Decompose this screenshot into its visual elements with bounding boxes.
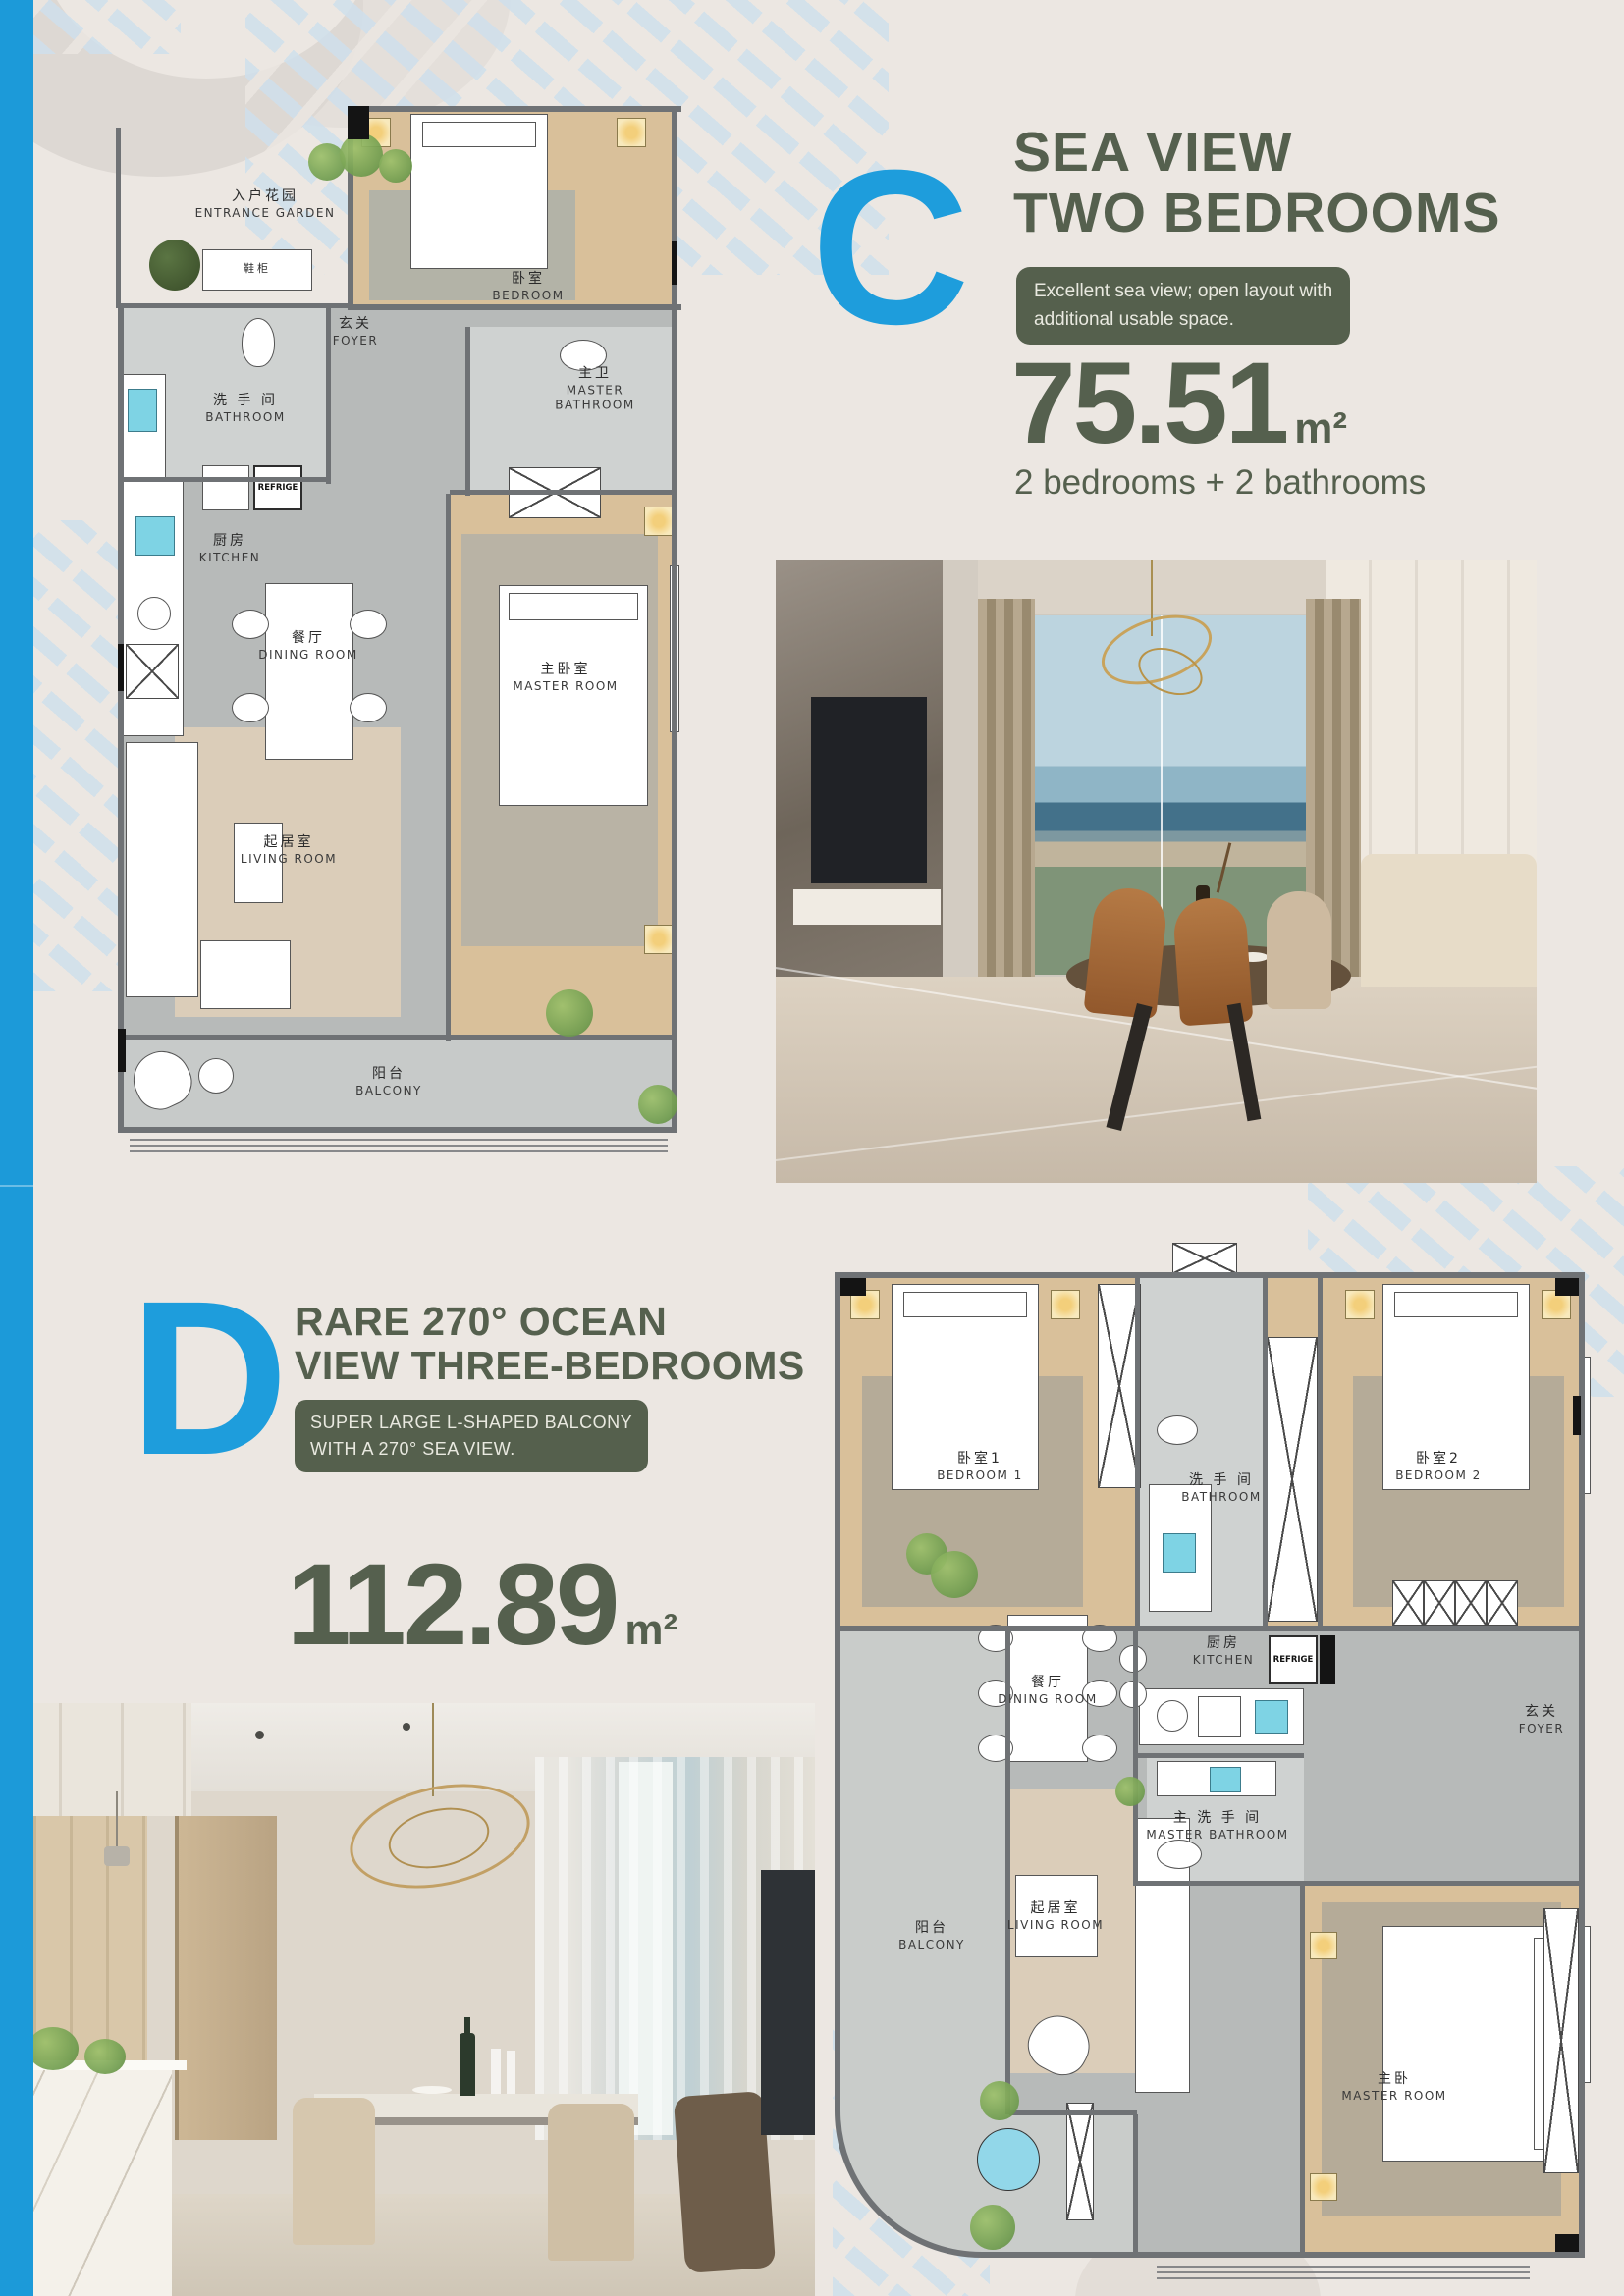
brochure-page: C SEA VIEW TWO BEDROOMS Excellent sea vi…: [0, 0, 1624, 2296]
unit-d-badge: SUPER LARGE L-SHAPED BALCONY WITH A 270°…: [295, 1400, 648, 1472]
plan-d-label-living-en: LIVING ROOM: [1007, 1917, 1104, 1932]
plan-d-label-bedroom2: 卧室2 BEDROOM 2: [1395, 1451, 1482, 1483]
plan-d-label-master-room-en: MASTER ROOM: [1341, 2088, 1446, 2103]
plan-c-label-entrance-garden-cn: 入户花园: [195, 188, 336, 206]
plan-c-blackwall-4: [118, 1029, 126, 1072]
plan-c-blackwall-3: [118, 644, 124, 691]
plan-c-sofa: [126, 742, 198, 997]
plan-d-label-master-bathroom-cn: 主 洗 手 间: [1146, 1810, 1288, 1828]
plan-c-garden-bush: [149, 240, 200, 291]
plan-d-w all-master-left: [1300, 1881, 1305, 2252]
plan-d-black-fridge: [1320, 1635, 1335, 1684]
plan-c-label-foyer-en: FOYER: [333, 333, 378, 347]
plan-d-wall-bedrooms-bottom: [840, 1626, 1579, 1631]
plan-d-label-dining-en: DINING ROOM: [998, 1691, 1097, 1706]
unit-d-area-unit: m²: [624, 1606, 677, 1654]
floorplan-unit-c: REFRIGE: [116, 94, 683, 1156]
plan-d-label-kitchen: 厨房 KITCHEN: [1193, 1635, 1255, 1668]
plan-c-label-foyer-cn: 玄关: [333, 316, 378, 334]
plan-d-label-balcony-cn: 阳台: [898, 1920, 965, 1938]
plan-d-wall-mbath-top: [1133, 1753, 1304, 1758]
plan-d-label-bathroom-en: BATHROOM: [1181, 1489, 1261, 1504]
plan-c-ottoman: [200, 940, 291, 1009]
plan-d-label-bedroom2-en: BEDROOM 2: [1395, 1468, 1482, 1482]
plan-c-label-master-bathroom: 主卫 MASTER BATHROOM: [552, 365, 638, 412]
plan-d-blackwall-3: [1573, 1396, 1581, 1435]
plan-c-label-dining: 餐厅 DINING ROOM: [258, 630, 357, 663]
plan-c-wall-bottom: [118, 1127, 677, 1133]
plan-d-label-balcony-en: BALCONY: [898, 1937, 965, 1951]
unit-c-config: 2 bedrooms + 2 bathrooms: [1014, 463, 1426, 503]
plan-d-label-foyer-cn: 玄关: [1519, 1704, 1564, 1722]
plan-c-label-balcony: 阳台 BALCONY: [355, 1066, 422, 1098]
floorplan-unit-d: REFRIGE: [833, 1239, 1597, 2296]
plan-d-label-living: 起居室 LIVING ROOM: [1007, 1900, 1104, 1933]
plan-c-wall-top: [348, 106, 681, 112]
unit-d-badge-line2: WITH A 270° SEA VIEW.: [310, 1436, 632, 1463]
plan-c-wall-garden-left: [116, 128, 121, 306]
plan-d-wall-master-top: [1300, 1881, 1583, 1886]
photo-unit-d-living-dining: [0, 1703, 815, 2296]
plan-d-tree-3: [1115, 1777, 1145, 1806]
plan-d-wall-balcony-right2: [1133, 2114, 1138, 2252]
plan-d-label-master-bathroom: 主 洗 手 间 MASTER BATHROOM: [1146, 1810, 1288, 1842]
left-accent-bar-seam: [0, 1185, 33, 1187]
plan-c-light-3: [644, 507, 674, 536]
unit-d-title: RARE 270° OCEAN VIEW THREE-BEDROOMS: [295, 1300, 805, 1388]
photo-d-pendant-cable: [116, 1791, 118, 1848]
plan-c-oven: [202, 465, 249, 510]
unit-c-area-value: 75.51: [1011, 339, 1286, 468]
photo-unit-c-dining-sea-view: [776, 560, 1537, 1183]
plan-c-label-master-bathroom-cn: 主卫: [552, 365, 638, 383]
plan-d-outer-wall: [835, 1272, 1585, 2258]
unit-c-area: 75.51m²: [1011, 346, 1347, 461]
photo-d-plant-2: [84, 2039, 126, 2074]
plan-c-balcony-line-3: [130, 1150, 668, 1152]
plan-c-label-kitchen-en: KITCHEN: [199, 550, 261, 564]
unit-c-area-unit: m²: [1294, 404, 1347, 453]
plan-d-label-bathroom: 洗 手 间 BATHROOM: [1181, 1472, 1261, 1505]
photo-c-sofa: [1361, 854, 1537, 987]
plan-c-balcony-line-2: [130, 1145, 668, 1147]
plan-d-label-balcony: 阳台 BALCONY: [898, 1920, 965, 1952]
photo-d-tv: [761, 1870, 815, 2135]
plan-c-stove: [137, 597, 171, 630]
plan-d-label-foyer: 玄关 FOYER: [1519, 1704, 1564, 1736]
plan-c-blackwall-1: [348, 106, 369, 139]
unit-c-title: SEA VIEW TWO BEDROOMS: [1013, 122, 1500, 243]
plan-c-label-kitchen-cn: 厨房: [199, 533, 261, 551]
plan-c-kitchen-sink: [135, 516, 175, 556]
unit-d-badge-line1: SUPER LARGE L-SHAPED BALCONY: [310, 1410, 632, 1436]
plan-c-wall-master-top: [450, 490, 677, 495]
unit-d-area: 112.89m²: [287, 1547, 677, 1663]
photo-d-door: [179, 1816, 277, 2140]
photo-d-bottle-neck: [464, 2017, 470, 2035]
photo-c-chair-beige: [1267, 891, 1331, 1009]
plan-c-label-foyer: 玄关 FOYER: [333, 316, 378, 348]
unit-c-letter: C: [811, 137, 968, 357]
plan-d-label-kitchen-en: KITCHEN: [1193, 1652, 1255, 1667]
plan-c-wall-bedroom-bottom: [348, 304, 681, 310]
photo-d-chair-left: [293, 2098, 375, 2245]
plan-d-label-bedroom2-cn: 卧室2: [1395, 1451, 1482, 1468]
left-accent-bar: [0, 0, 33, 2296]
plan-c-label-bedroom: 卧室 BEDROOM: [492, 271, 564, 303]
plan-d-tree-2: [931, 1551, 978, 1598]
plan-d-wall-bathroom-left: [1135, 1278, 1140, 1626]
plan-c-chair-4: [350, 693, 387, 722]
plan-d-label-master-bathroom-en: MASTER BATHROOM: [1146, 1827, 1288, 1842]
photo-d-glass-2: [507, 2051, 515, 2094]
plan-d-blackwall-1: [840, 1278, 866, 1296]
plan-c-wall-bath-right: [326, 307, 331, 484]
plan-c-light-2: [617, 118, 646, 147]
plan-c-label-living-en: LIVING ROOM: [241, 851, 337, 866]
plan-c-label-master-room: 主卧室 MASTER ROOM: [513, 662, 618, 694]
plan-c-label-master-room-en: MASTER ROOM: [513, 678, 618, 693]
plan-d-blackwall-4: [1555, 2234, 1579, 2252]
plan-c-label-balcony-en: BALCONY: [355, 1083, 422, 1097]
photo-d-plate: [412, 2086, 452, 2094]
plan-c-label-bedroom-en: BEDROOM: [492, 288, 564, 302]
plan-c-label-living-cn: 起居室: [241, 834, 337, 852]
plan-c-light-4: [644, 925, 674, 954]
plan-c-balcony-table: [198, 1058, 234, 1094]
plan-d-blackwall-2: [1555, 1278, 1579, 1296]
photo-d-glass-1: [491, 2049, 501, 2094]
plan-d-label-bathroom-cn: 洗 手 间: [1181, 1472, 1261, 1490]
plan-c-label-dining-en: DINING ROOM: [258, 647, 357, 662]
plan-c-tree-2: [340, 133, 383, 177]
photo-d-spot-2: [255, 1731, 264, 1739]
photo-d-pendant-shade: [104, 1846, 130, 1866]
plan-c-wall-left: [118, 303, 124, 1133]
photo-d-plant-1: [27, 2027, 79, 2070]
plan-c-wall-master-left: [446, 494, 451, 1041]
plan-d-label-bedroom1-en: BEDROOM 1: [937, 1468, 1023, 1482]
plan-d-tree-4: [980, 2081, 1019, 2120]
photo-c-tv-console: [793, 889, 941, 925]
plan-c-blackwall-2: [672, 241, 677, 285]
plan-d-label-dining: 餐厅 DINING ROOM: [998, 1675, 1097, 1707]
unit-c-title-line1: SEA VIEW: [1013, 122, 1500, 183]
plan-c-wall-garden-bottom: [116, 303, 352, 308]
plan-c-label-entrance-garden-en: ENTRANCE GARDEN: [195, 205, 336, 220]
plan-d-balcony-line-3: [1157, 2277, 1530, 2279]
plan-c-label-bathroom: 洗 手 间 BATHROOM: [205, 393, 285, 425]
plan-c-label-bathroom-cn: 洗 手 间: [205, 393, 285, 410]
plan-c-label-shoe-cabinet-cn: 鞋柜: [244, 262, 271, 276]
plan-d-wall-balcony-top2: [1009, 2110, 1137, 2115]
plan-d-label-bedroom1: 卧室1 BEDROOM 1: [937, 1451, 1023, 1483]
plan-d-label-foyer-en: FOYER: [1519, 1721, 1564, 1735]
plan-c-kitchen-cabinet-x: [126, 644, 179, 699]
plan-c-wall-balcony-top: [118, 1035, 677, 1040]
plan-c-label-bathroom-en: BATHROOM: [205, 409, 285, 424]
unit-d-title-line1: RARE 270° OCEAN: [295, 1300, 805, 1344]
unit-c-badge-line1: Excellent sea view; open layout with: [1034, 278, 1332, 306]
plan-d-tree-5: [970, 2205, 1015, 2250]
plan-d-label-master-room-cn: 主卧: [1341, 2071, 1446, 2089]
unit-c-badge-line2: additional usable space.: [1034, 306, 1332, 335]
plan-c-living-plant: [546, 989, 593, 1037]
plan-c-wall-kitchen-top: [118, 477, 330, 482]
unit-d-area-value: 112.89: [287, 1540, 617, 1670]
photo-c-marble-trim: [943, 560, 978, 1001]
plan-d-wall-bathroom-right: [1263, 1278, 1268, 1626]
plan-c-refrigerator: REFRIGE: [253, 465, 302, 510]
plan-c-label-bedroom-cn: 卧室: [492, 271, 564, 289]
plan-d-label-master-room: 主卧 MASTER ROOM: [1341, 2071, 1446, 2104]
photo-c-curtain-left: [978, 599, 1035, 991]
plan-c-bed-pillow: [422, 122, 536, 147]
unit-d-title-line2: VIEW THREE-BEDROOMS: [295, 1344, 805, 1388]
unit-c-title-line2: TWO BEDROOMS: [1013, 183, 1500, 243]
plan-c-balcony-line-1: [130, 1139, 668, 1141]
plan-c-wall-mbath-left: [465, 327, 470, 496]
unit-c-badge: Excellent sea view; open layout with add…: [1016, 267, 1350, 345]
photo-c-tv: [811, 697, 927, 883]
photo-d-chandelier-cable: [432, 1703, 434, 1796]
unit-d-letter: D: [130, 1268, 287, 1488]
plan-c-balcony-plant: [638, 1085, 677, 1124]
plan-c-label-shoe-cabinet: 鞋柜: [244, 262, 271, 276]
plan-c-label-living: 起居室 LIVING ROOM: [241, 834, 337, 867]
plan-c-label-kitchen: 厨房 KITCHEN: [199, 533, 261, 565]
plan-c-chair-2: [232, 693, 269, 722]
plan-c-label-master-room-cn: 主卧室: [513, 662, 618, 679]
plan-d-wall-mbath-bottom: [1133, 1881, 1304, 1886]
plan-c-master-bed-pillow: [509, 593, 638, 620]
plan-c-label-dining-cn: 餐厅: [258, 630, 357, 648]
plan-d-label-living-cn: 起居室: [1007, 1900, 1104, 1918]
plan-c-label-master-bathroom-en: MASTER BATHROOM: [552, 383, 638, 412]
plan-c-toilet: [242, 318, 275, 367]
stripe-pattern-topleft: [33, 0, 181, 54]
plan-d-label-kitchen-cn: 厨房: [1193, 1635, 1255, 1653]
plan-d-label-dining-cn: 餐厅: [998, 1675, 1097, 1692]
plan-d-wall-bedroom2-left: [1318, 1278, 1323, 1626]
plan-d-balcony-line-2: [1157, 2271, 1530, 2273]
photo-d-wine-bottle: [460, 2033, 475, 2096]
photo-d-chair-mid: [548, 2104, 634, 2261]
plan-c-label-balcony-cn: 阳台: [355, 1066, 422, 1084]
plan-d-entry-porch-x: [1172, 1243, 1237, 1274]
plan-d-balcony-line-1: [1157, 2266, 1530, 2268]
plan-c-label-entrance-garden: 入户花园 ENTRANCE GARDEN: [195, 188, 336, 221]
plan-c-bath-sink: [128, 389, 157, 432]
plan-d-label-bedroom1-cn: 卧室1: [937, 1451, 1023, 1468]
plan-c-dining-table: [265, 583, 353, 760]
plan-c-tree-3: [379, 149, 412, 183]
photo-d-spot-3: [403, 1723, 410, 1731]
